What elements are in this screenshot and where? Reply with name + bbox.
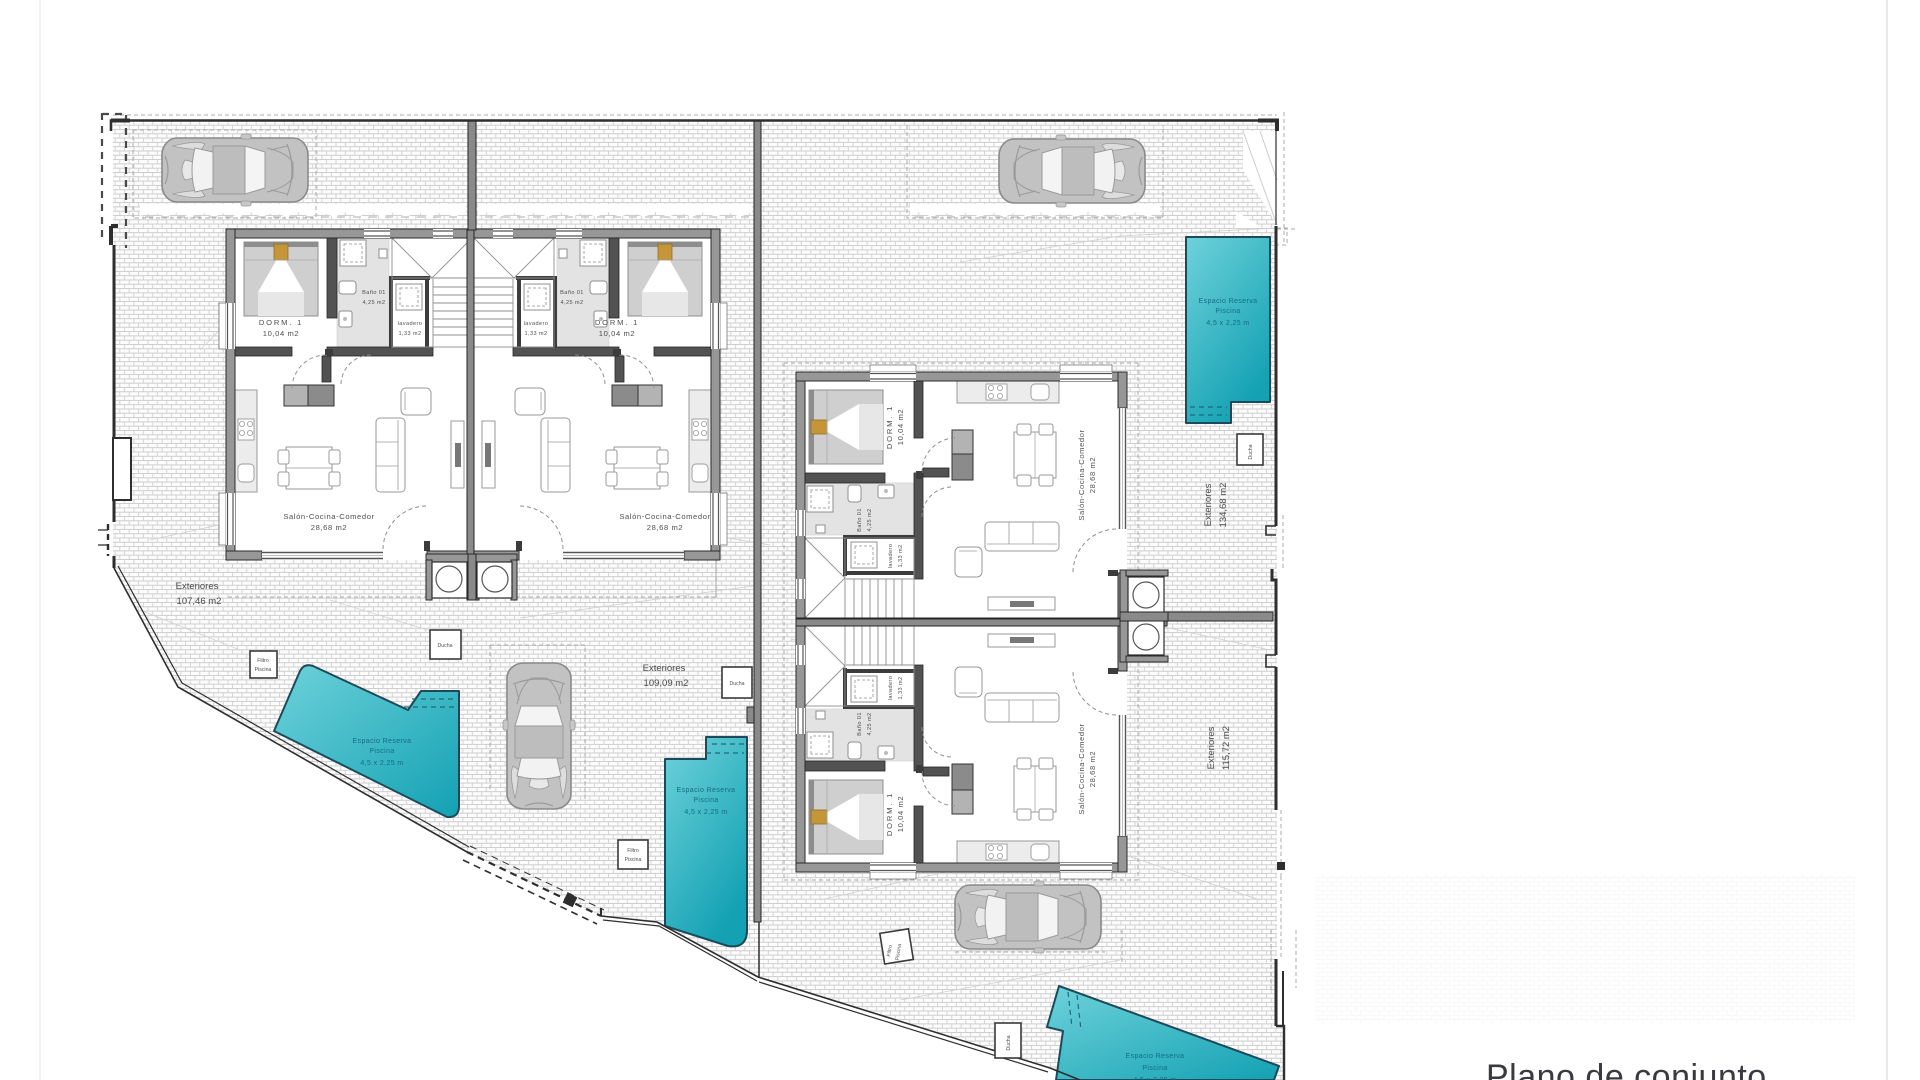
svg-text:Piscina: Piscina (625, 857, 642, 863)
svg-text:4,5 x 2,25 m: 4,5 x 2,25 m (360, 760, 403, 767)
svg-text:109,09 m2: 109,09 m2 (644, 678, 689, 689)
svg-text:28,68 m2: 28,68 m2 (647, 523, 683, 532)
svg-text:Exteriores: Exteriores (1203, 483, 1214, 526)
svg-text:DORM. 1: DORM. 1 (885, 405, 894, 449)
svg-text:Baño 01: Baño 01 (857, 508, 863, 532)
svg-text:Salón-Cocina-Comedor: Salón-Cocina-Comedor (283, 512, 374, 521)
svg-text:Exteriores: Exteriores (176, 581, 219, 592)
svg-text:10,04 m2: 10,04 m2 (599, 329, 635, 338)
svg-text:10,04 m2: 10,04 m2 (896, 409, 905, 445)
svg-text:4,25 m2: 4,25 m2 (867, 712, 873, 735)
svg-text:Exteriores: Exteriores (1206, 726, 1217, 769)
svg-text:Piscina: Piscina (1142, 1065, 1167, 1072)
svg-text:Plano de conjunto: Plano de conjunto (1486, 1058, 1767, 1080)
svg-text:Filtro: Filtro (627, 848, 639, 854)
svg-text:Ducha: Ducha (1248, 444, 1254, 459)
svg-text:28,68 m2: 28,68 m2 (1088, 751, 1097, 787)
svg-text:lavadero: lavadero (888, 676, 894, 701)
svg-text:4,5 x 2,25 m: 4,5 x 2,25 m (684, 809, 727, 816)
svg-text:Espacio Reserva: Espacio Reserva (1126, 1053, 1185, 1060)
svg-text:1,33 m2: 1,33 m2 (398, 331, 421, 337)
svg-text:4,25 m2: 4,25 m2 (867, 508, 873, 531)
svg-text:lavadero: lavadero (524, 321, 549, 327)
svg-text:10,04 m2: 10,04 m2 (263, 329, 299, 338)
svg-text:Exteriores: Exteriores (643, 663, 686, 674)
svg-text:1,33 m2: 1,33 m2 (524, 331, 547, 337)
svg-text:DORM. 1: DORM. 1 (595, 318, 639, 327)
svg-text:Espacio Reserva: Espacio Reserva (353, 738, 412, 745)
svg-text:Piscina: Piscina (255, 667, 272, 673)
svg-text:lavadero: lavadero (888, 544, 894, 569)
svg-text:Baño 01: Baño 01 (560, 290, 584, 296)
svg-text:Ducha: Ducha (1006, 1035, 1012, 1050)
svg-text:Salón-Cocina-Comedor: Salón-Cocina-Comedor (1077, 723, 1086, 814)
svg-text:Espacio Reserva: Espacio Reserva (1199, 298, 1258, 305)
svg-text:lavadero: lavadero (398, 321, 423, 327)
svg-text:4,25 m2: 4,25 m2 (560, 300, 583, 306)
svg-text:Ducha: Ducha (438, 643, 453, 649)
svg-text:Salón-Cocina-Comedor: Salón-Cocina-Comedor (1077, 429, 1086, 520)
svg-text:Filtro: Filtro (257, 658, 269, 664)
svg-text:107,46 m2: 107,46 m2 (177, 596, 222, 607)
svg-text:134,68 m2: 134,68 m2 (1218, 483, 1229, 528)
svg-text:1,33 m2: 1,33 m2 (898, 544, 904, 567)
svg-text:Salón-Cocina-Comedor: Salón-Cocina-Comedor (619, 512, 710, 521)
svg-text:Espacio Reserva: Espacio Reserva (677, 787, 736, 794)
svg-text:4,25 m2: 4,25 m2 (362, 300, 385, 306)
svg-text:4,5 x 2,25 m: 4,5 x 2,25 m (1206, 320, 1249, 327)
svg-text:28,68 m2: 28,68 m2 (1088, 457, 1097, 493)
svg-text:DORM. 1: DORM. 1 (259, 318, 303, 327)
svg-text:10,04 m2: 10,04 m2 (896, 796, 905, 832)
svg-text:1,33 m2: 1,33 m2 (898, 676, 904, 699)
svg-text:DORM. 1: DORM. 1 (885, 792, 894, 836)
svg-text:Baño 01: Baño 01 (857, 712, 863, 736)
svg-text:Piscina: Piscina (693, 797, 718, 804)
svg-text:Piscina: Piscina (1215, 308, 1240, 315)
svg-text:Piscina: Piscina (369, 748, 394, 755)
svg-text:Ducha: Ducha (730, 681, 745, 687)
svg-text:28,68 m2: 28,68 m2 (311, 523, 347, 532)
svg-text:Baño 01: Baño 01 (362, 290, 386, 296)
svg-text:115,72 m2: 115,72 m2 (1221, 726, 1232, 770)
